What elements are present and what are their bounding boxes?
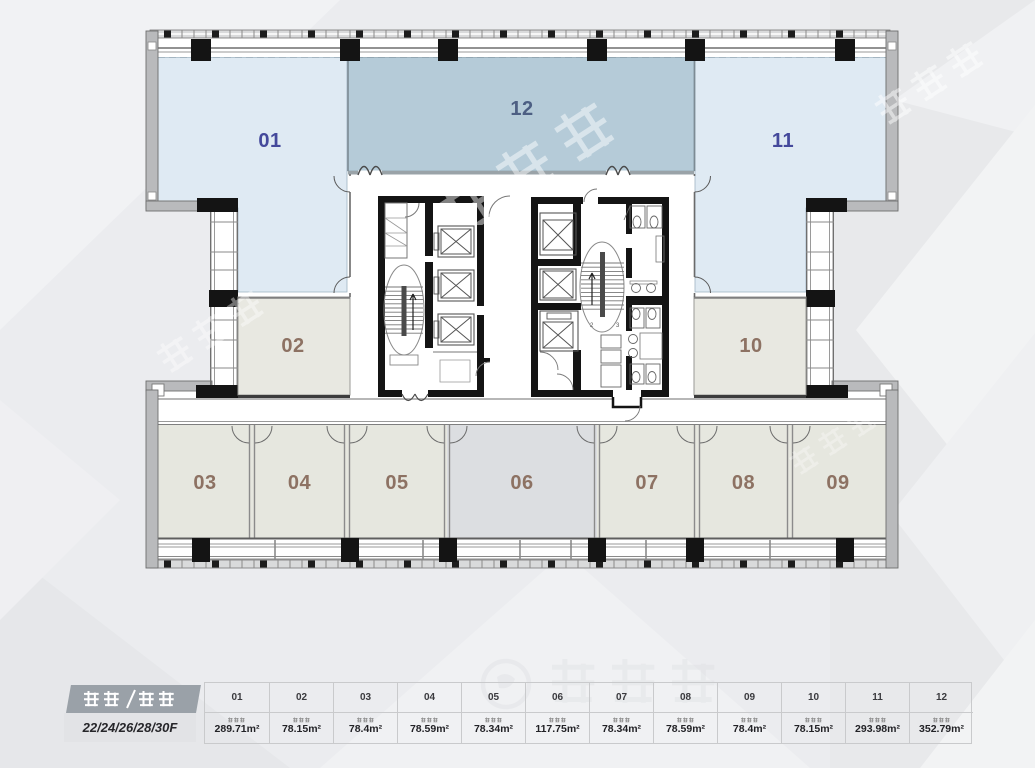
- svg-text:03: 03: [193, 472, 216, 494]
- svg-text:06: 06: [510, 472, 533, 494]
- svg-text:05: 05: [385, 472, 408, 494]
- svg-text:11: 11: [772, 130, 794, 152]
- svg-text:10: 10: [739, 335, 762, 357]
- svg-text:08: 08: [732, 472, 755, 494]
- svg-text:04: 04: [288, 472, 312, 494]
- svg-text:01: 01: [258, 130, 281, 152]
- svg-text:07: 07: [635, 472, 658, 494]
